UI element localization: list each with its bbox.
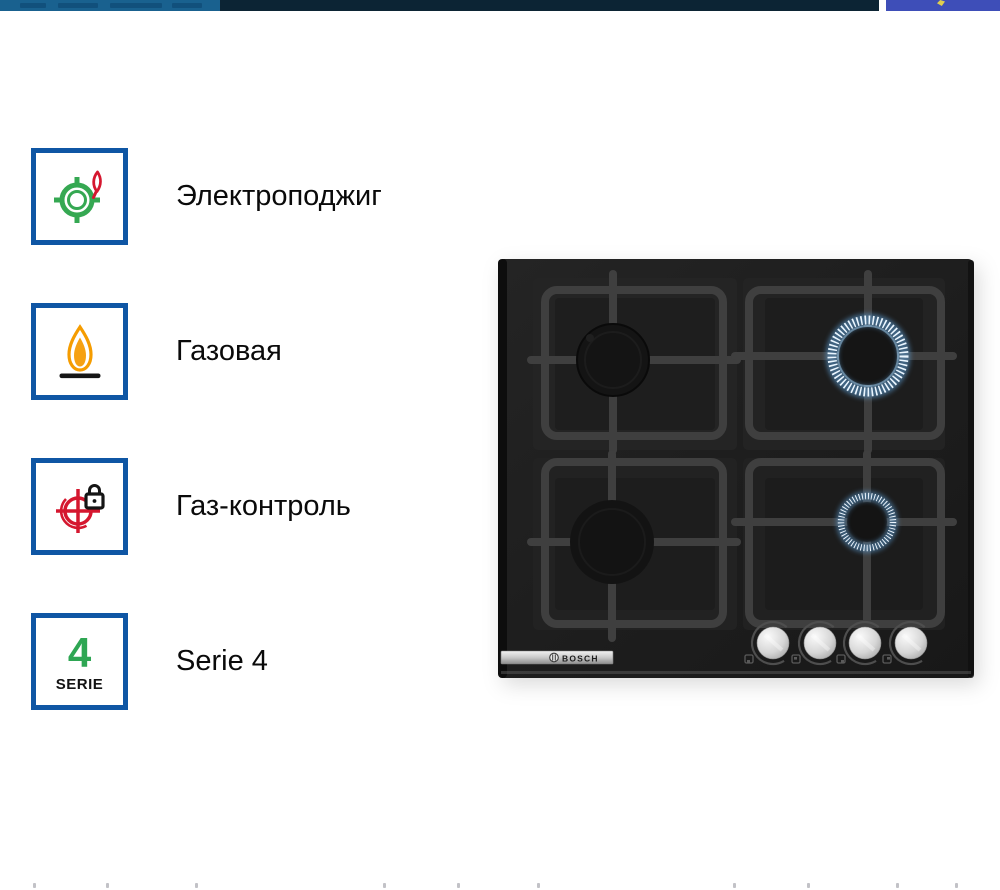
feature-row-gas-control: Газ-контроль (31, 458, 451, 555)
toolbar-text-fragment (20, 3, 46, 8)
bosch-logo-text: BOSCH (562, 654, 599, 664)
spark-icon (937, 0, 945, 6)
toolbar-text-fragment (110, 3, 162, 8)
gas-control-box (31, 458, 128, 555)
toolbar-text-fragment (58, 3, 98, 8)
feature-label: Электроподжиг (176, 180, 382, 213)
flame-ring-small (841, 496, 893, 548)
cutoff-tick (457, 883, 460, 888)
flame-ring-large (832, 320, 904, 392)
product-feature-slide: Электроподжиг Газовая (0, 0, 1000, 890)
feature-label: Serie 4 (176, 645, 268, 678)
gas-control-lock-icon (48, 475, 112, 539)
serie-badge-caption: SERIE (56, 677, 104, 692)
top-bar (0, 0, 1000, 11)
cutoff-thumbnails-strip (0, 878, 1000, 890)
burner-cap-top-left (577, 324, 649, 396)
feature-row-serie: 4 SERIE Serie 4 (31, 613, 451, 710)
cutoff-tick (33, 883, 36, 888)
bosch-emblem-icon (550, 653, 559, 662)
feature-row-ignition: Электроподжиг (31, 148, 451, 245)
serie-4-badge: 4 SERIE (31, 613, 128, 710)
gas-flame-icon (48, 320, 112, 384)
cutoff-tick (955, 883, 958, 888)
feature-row-gas: Газовая (31, 303, 451, 400)
toolbar-text-fragment (172, 3, 202, 8)
ignition-burner-icon (48, 165, 112, 229)
cutoff-tick (106, 883, 109, 888)
cutoff-tick (807, 883, 810, 888)
cutoff-tick (195, 883, 198, 888)
product-photo: BOSCH (497, 258, 975, 681)
top-bar-left-segment (0, 0, 220, 11)
feature-label: Газ-контроль (176, 490, 351, 523)
gas-flame-box (31, 303, 128, 400)
electric-ignition-icon (31, 148, 128, 245)
cutoff-tick (733, 883, 736, 888)
cutoff-tick (537, 883, 540, 888)
gas-hob-illustration: BOSCH (497, 258, 975, 681)
burner-cap-bottom-left (570, 500, 654, 584)
serie-badge-number: 4 (68, 632, 91, 674)
cutoff-tick (896, 883, 899, 888)
cutoff-tick (383, 883, 386, 888)
top-bar-middle-segment (220, 0, 879, 11)
feature-label: Газовая (176, 335, 282, 368)
top-bar-right-segment (886, 0, 1000, 11)
bosch-logo: BOSCH (501, 651, 613, 664)
